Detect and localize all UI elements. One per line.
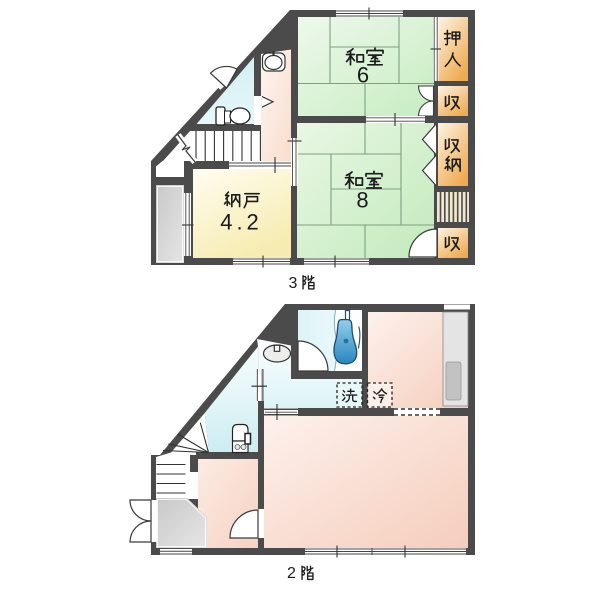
svg-text:2: 2: [287, 565, 296, 582]
svg-text:6: 6: [357, 63, 369, 88]
svg-text:8: 8: [356, 188, 368, 213]
svg-text:4.2: 4.2: [220, 210, 263, 235]
svg-text:3: 3: [289, 275, 298, 292]
